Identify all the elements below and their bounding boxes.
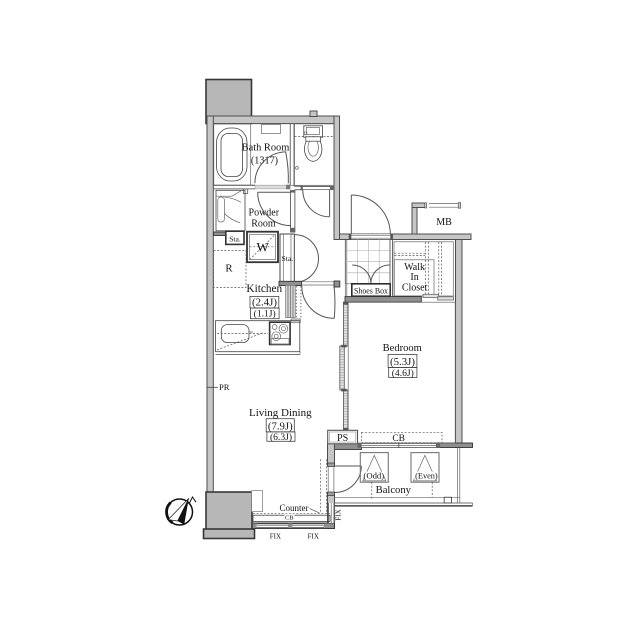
svg-text:Walk: Walk: [404, 262, 425, 273]
svg-text:Kitchen: Kitchen: [246, 283, 282, 295]
svg-text:CB: CB: [285, 515, 294, 522]
svg-text:MB: MB: [436, 217, 452, 228]
svg-text:FIX: FIX: [308, 532, 319, 540]
svg-text:W: W: [256, 240, 269, 255]
svg-text:Shoes Box: Shoes Box: [354, 286, 389, 296]
svg-text:(4.6J): (4.6J): [392, 368, 414, 379]
svg-text:FIX: FIX: [335, 509, 343, 520]
svg-text:Bedroom: Bedroom: [383, 343, 422, 354]
svg-text:(1.1J): (1.1J): [254, 309, 276, 320]
svg-text:Balcony: Balcony: [376, 485, 412, 496]
svg-text:Closet: Closet: [402, 283, 428, 294]
svg-text:Counter: Counter: [280, 503, 309, 513]
svg-text:CB: CB: [392, 434, 405, 444]
svg-text:Powder: Powder: [249, 208, 280, 219]
svg-text:(Even): (Even): [415, 472, 438, 481]
svg-text:(5.3J): (5.3J): [390, 356, 415, 368]
svg-text:(Odd): (Odd): [363, 471, 384, 481]
svg-text:PR: PR: [219, 382, 230, 392]
svg-text:In: In: [410, 272, 418, 283]
svg-text:PS: PS: [337, 433, 348, 444]
svg-text:Living Dining: Living Dining: [249, 407, 312, 419]
svg-text:R: R: [225, 263, 233, 275]
svg-text:Sta.: Sta.: [229, 234, 241, 243]
svg-text:(6.3J): (6.3J): [270, 432, 292, 443]
svg-text:Sta.: Sta.: [281, 254, 293, 263]
svg-text:(2.4J): (2.4J): [252, 297, 277, 309]
svg-text:(7.9J): (7.9J): [268, 420, 293, 432]
svg-text:FIX: FIX: [270, 532, 281, 540]
